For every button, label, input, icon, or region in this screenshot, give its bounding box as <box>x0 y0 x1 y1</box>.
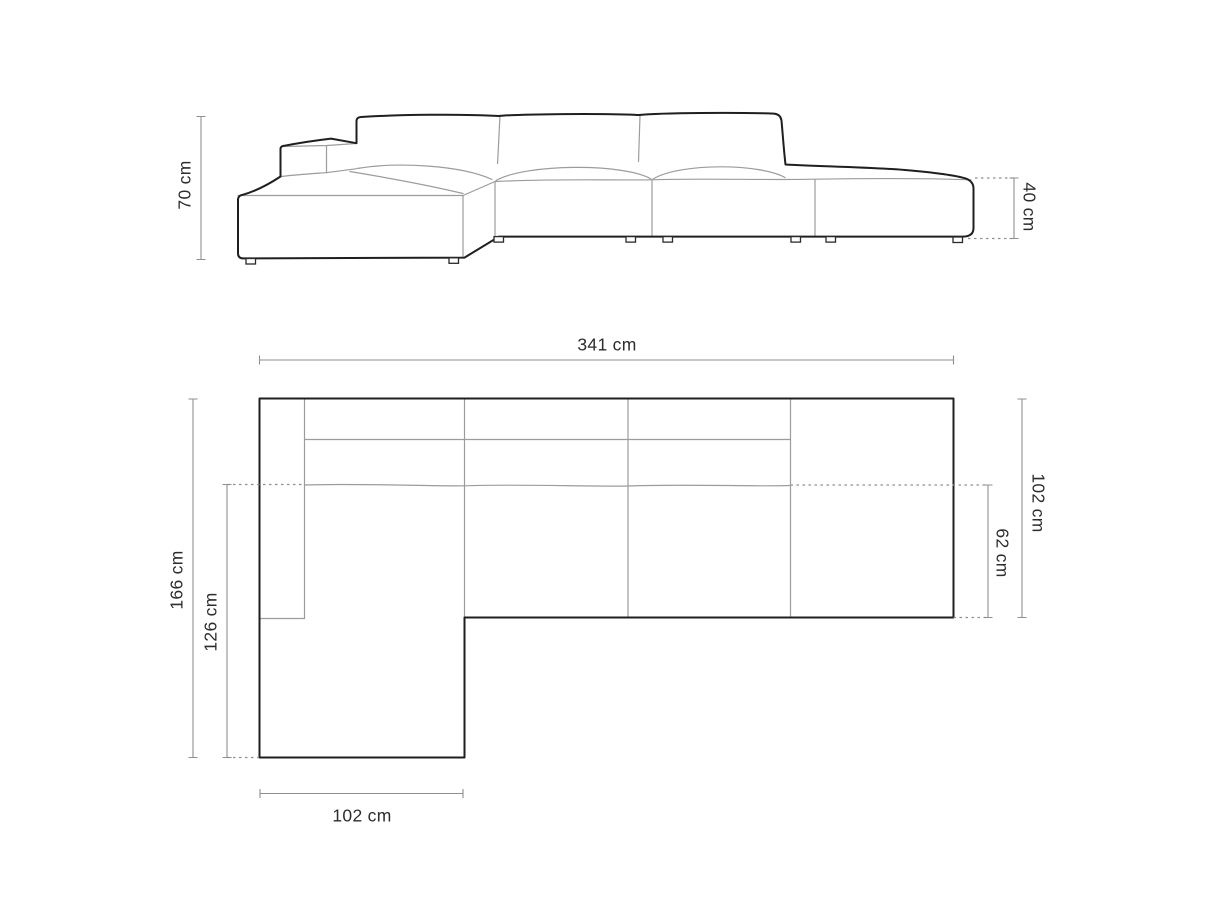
backrest-divider-2 <box>639 116 641 162</box>
sofa-leg <box>626 237 636 243</box>
top-view <box>189 356 1027 799</box>
technical-drawing-canvas <box>0 0 1214 911</box>
cushion-front-line <box>305 484 791 486</box>
seat-cushion-arc-2 <box>496 167 651 180</box>
top-view-detail-lines <box>260 399 791 619</box>
dim-label-seat-height-40: 40 cm <box>1019 182 1040 231</box>
dim-label-height-70: 70 cm <box>175 160 196 209</box>
dim-label-chaise-length-166: 166 cm <box>167 550 188 609</box>
sofa-leg <box>791 237 801 243</box>
seat-base-top-line <box>495 179 971 182</box>
front-view-legs <box>246 237 963 264</box>
front-view-silhouette <box>238 113 974 258</box>
sofa-leg <box>246 259 256 265</box>
backrest-divider-1 <box>498 117 501 164</box>
dim-label-seat-depth-62: 62 cm <box>992 528 1013 577</box>
dim-label-chaise-inner-length-126: 126 cm <box>201 592 222 651</box>
sofa-leg <box>826 237 836 243</box>
seat-cushion-arc-1 <box>357 165 492 179</box>
dim-label-chaise-width-102: 102 cm <box>332 806 391 827</box>
sofa-leg <box>663 237 673 243</box>
plan-outline <box>260 399 954 758</box>
sofa-leg <box>953 237 963 243</box>
front-view <box>197 113 1019 264</box>
sofa-leg <box>494 237 504 243</box>
top-view-dimensions <box>189 356 1027 799</box>
sofa-leg <box>449 258 459 264</box>
sofa-dimension-diagram: 70 cm 40 cm 341 cm 102 cm 62 cm 166 cm 1… <box>0 0 1214 911</box>
chaise-deck-back-edge <box>350 172 463 194</box>
front-view-dimensions <box>197 117 1019 260</box>
sofa-front-silhouette <box>238 113 974 258</box>
dim-label-total-width-341: 341 cm <box>577 335 636 356</box>
dim-label-total-depth-102: 102 cm <box>1028 473 1049 532</box>
seat-cushion-arc-3 <box>653 167 785 179</box>
armrest-bottom-edge <box>281 169 356 177</box>
chaise-side-top-edge <box>463 182 495 196</box>
